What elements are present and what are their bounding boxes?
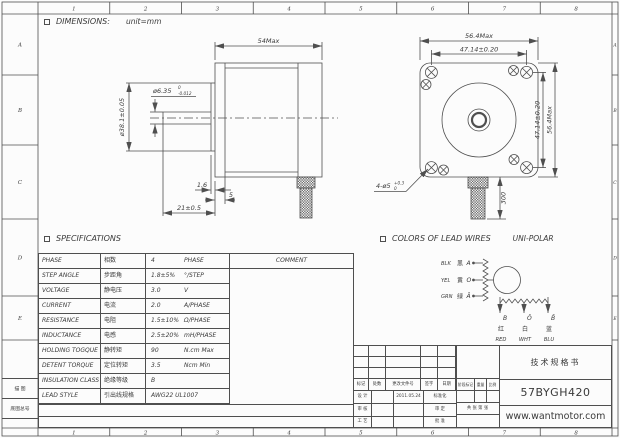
sign-date bbox=[394, 404, 424, 417]
spec-unit bbox=[184, 389, 229, 403]
sign-row-process: 工 艺 批 准 bbox=[354, 417, 456, 427]
zone-number: 7 bbox=[503, 431, 507, 437]
coil-winding-a bbox=[483, 259, 488, 301]
spec-name: LEAD STYLE bbox=[39, 389, 101, 403]
spec-name-cn: 步距角 bbox=[101, 269, 146, 283]
spec-name-cn: 引出线规格 bbox=[101, 389, 146, 403]
dim-hole-pitch-v: 47.14±0.20 bbox=[534, 101, 542, 140]
dim-shaft-dia: ø6.35 bbox=[152, 87, 171, 95]
spec-row-lead-style: LEAD STYLE 引出线规格 AWG22 UL1007 bbox=[39, 389, 229, 404]
wire-color-abbr: BLK bbox=[441, 261, 451, 267]
cable-bundle bbox=[300, 188, 312, 218]
zone-number: 4 bbox=[286, 431, 291, 437]
title-block-right: 技术规格书 57BYGH420 www.wantmotor.com bbox=[499, 346, 611, 427]
spec-row-current: CURRENT 电流 2.0A/PHASE bbox=[39, 299, 229, 314]
spec-name: VOLTAGE bbox=[39, 284, 101, 298]
website: www.wantmotor.com bbox=[500, 406, 611, 427]
sign-label: 工 艺 bbox=[354, 417, 372, 427]
sign-date: 2011.05.24 bbox=[394, 391, 424, 404]
dimensions-section-header: DIMENSIONS: unit=mm bbox=[44, 17, 161, 26]
rev-header: 日期 bbox=[438, 379, 456, 391]
wire-color-abbr: RED bbox=[496, 337, 507, 343]
zone-number: 8 bbox=[574, 431, 578, 437]
dim-hole-callout: 4-ø5 bbox=[376, 182, 391, 190]
spec-row-voltage: VOLTAGE 静电压 3.0V bbox=[39, 284, 229, 299]
rev-header: 处数 bbox=[369, 379, 386, 391]
zone-letter: E bbox=[612, 316, 617, 322]
dim-hole-tol-upper: +0.3 bbox=[394, 181, 405, 186]
spec-name-cn: 静电压 bbox=[101, 284, 146, 298]
zone-number: 5 bbox=[359, 431, 363, 437]
coil-winding-b bbox=[500, 299, 548, 303]
zone-letter: A bbox=[612, 43, 617, 49]
zone-number: 5 bbox=[359, 7, 363, 13]
spec-name: HOLDING TOGQUE bbox=[39, 344, 101, 358]
sign-row-check: 审 核 审 定 bbox=[354, 404, 456, 417]
spec-name: STEP ANGLE bbox=[39, 269, 101, 283]
lead-wires-diagram: BLK 黑 A YEL 黄 O GRN 绿 Ā B Ō B̄ 红 白 蓝 RED… bbox=[441, 259, 555, 343]
zone-letter: D bbox=[17, 256, 23, 262]
dim-hole-tol-lower: 0 bbox=[394, 186, 397, 191]
zone-number: 8 bbox=[574, 7, 578, 13]
spec-name: INDUCTANCE bbox=[39, 329, 101, 343]
spec-row-detent-torque: DETENT TORQUE 定位转矩 3.5Ncm Min bbox=[39, 359, 229, 374]
sign-date bbox=[394, 417, 424, 427]
zone-letter: B bbox=[612, 108, 617, 114]
zone-number: 6 bbox=[431, 431, 435, 437]
wire-color-cn: 蓝 bbox=[546, 325, 552, 333]
cable-connector bbox=[297, 177, 315, 188]
spec-row-insulation-class: INSULATION CLASS 绝缘等级 B bbox=[39, 374, 229, 389]
spec-row-phase: PHASE 相数 4PHASE bbox=[39, 254, 229, 269]
spec-empty-rows bbox=[39, 404, 353, 427]
wire-color-cn: 黑 bbox=[457, 261, 463, 268]
spec-name-cn: 定位转矩 bbox=[101, 359, 146, 373]
zone-letter: D bbox=[612, 256, 617, 262]
spec-name: PHASE bbox=[39, 254, 101, 268]
wire-color-cn: 红 bbox=[498, 325, 504, 333]
comment-header: COMMENT bbox=[230, 254, 353, 269]
wire-color-cn: 白 bbox=[522, 325, 528, 333]
specifications-table: PHASE 相数 4PHASE STEP ANGLE 步距角 1.8±5%°/S… bbox=[38, 253, 354, 428]
section-checkbox-icon bbox=[44, 19, 50, 25]
wire-terminal: A bbox=[466, 260, 471, 267]
motor-body-circle bbox=[494, 267, 521, 294]
zone-number: 4 bbox=[286, 7, 291, 13]
zone-letter: A bbox=[17, 43, 22, 49]
wire-color-abbr: GRN bbox=[441, 294, 453, 300]
corner-cell: 描 图 bbox=[2, 379, 38, 399]
spec-value: 90 bbox=[146, 344, 184, 358]
corner-cell: 底图总号 bbox=[2, 399, 38, 419]
sign-label: 设 计 bbox=[354, 391, 372, 404]
rev-header: 签字 bbox=[421, 379, 438, 391]
spec-unit bbox=[184, 374, 229, 388]
dim-boss-height: 1.6 bbox=[197, 181, 207, 189]
dim-body-height: 56.4Max bbox=[546, 106, 554, 134]
cable-bundle bbox=[471, 188, 485, 219]
comment-column: COMMENT bbox=[229, 254, 353, 404]
spec-name-cn: 绝缘等级 bbox=[101, 374, 146, 388]
zone-number: 2 bbox=[143, 431, 148, 437]
wire-terminal: O bbox=[467, 277, 472, 284]
spec-name-cn: 电流 bbox=[101, 299, 146, 313]
spec-row-inductance: INDUCTANCE 电感 2.5±20%mH/PHASE bbox=[39, 329, 229, 344]
lead-wires-section-header: COLORS OF LEAD WIRES UNI-POLAR bbox=[380, 234, 554, 243]
wire-color-abbr: WHT bbox=[519, 337, 532, 343]
section-checkbox-icon bbox=[44, 236, 50, 242]
wire-color-abbr: YEL bbox=[441, 278, 450, 284]
zone-letter: E bbox=[17, 316, 22, 322]
dimensions-title: DIMENSIONS: bbox=[56, 17, 110, 26]
cable-connector bbox=[468, 177, 488, 188]
zone-number: 1 bbox=[72, 7, 76, 13]
dim-lead-length: 300 bbox=[500, 192, 508, 204]
spec-name: DETENT TORQUE bbox=[39, 359, 101, 373]
dim-body-length: 54Max bbox=[258, 37, 280, 45]
spec-value: 1.8±5% bbox=[146, 269, 184, 283]
revision-header-row: 标记 处数 更改文件号 签字 日期 bbox=[354, 379, 456, 391]
specifications-title: SPECIFICATIONS bbox=[56, 234, 121, 243]
specifications-section-header: SPECIFICATIONS bbox=[44, 234, 121, 243]
datasheet-page: 1 2 3 4 5 6 7 8 1 2 3 4 5 6 7 8 A B C D … bbox=[0, 0, 620, 438]
dim-body-width: 56.4Max bbox=[465, 32, 493, 40]
spec-row-holding-torque: HOLDING TOGQUE 静转矩 90N.cm Max bbox=[39, 344, 229, 359]
wire-terminal: B bbox=[503, 315, 507, 322]
dim-hole-pitch-h: 47.14±0.20 bbox=[460, 46, 499, 54]
spec-name-cn: 静转矩 bbox=[101, 344, 146, 358]
sign-right-label: 标准化 bbox=[424, 391, 456, 404]
spec-unit: mH/PHASE bbox=[184, 329, 229, 343]
sign-right-label: 审 定 bbox=[424, 404, 456, 417]
zone-number: 6 bbox=[431, 7, 435, 13]
spec-row-step-angle: STEP ANGLE 步距角 1.8±5%°/STEP bbox=[39, 269, 229, 284]
sign-right-label: 批 准 bbox=[424, 417, 456, 427]
spec-unit: PHASE bbox=[184, 254, 229, 268]
spec-name: RESISTANCE bbox=[39, 314, 101, 328]
corner-block: 描 图 底图总号 bbox=[2, 378, 38, 428]
wire-terminal: Ō bbox=[527, 315, 532, 322]
spec-row-resistance: RESISTANCE 电阻 1.5±10%Ω/PHASE bbox=[39, 314, 229, 329]
unit-note: unit=mm bbox=[126, 17, 161, 26]
spec-unit: A/PHASE bbox=[184, 299, 229, 313]
motor-front-view-drawing: 56.4Max 47.14±0.20 47.14±0.20 56.4Max 30… bbox=[374, 32, 558, 219]
dim-shaft-tol-lower: -0.012 bbox=[178, 91, 192, 96]
spec-value: 1.5±10% bbox=[146, 314, 184, 328]
dim-shaft-length: 21±0.5 bbox=[177, 204, 201, 212]
motor-side-view-drawing: 54Max ø6.35 0 -0.012 ø38.1±0.05 1.6 5 21… bbox=[118, 37, 338, 218]
spec-name-cn: 电阻 bbox=[101, 314, 146, 328]
sign-label: 审 核 bbox=[354, 404, 372, 417]
wire-terminal: Ā bbox=[466, 293, 471, 300]
spec-unit: Ω/PHASE bbox=[184, 314, 229, 328]
spec-value: 4 bbox=[146, 254, 184, 268]
spec-value: 3.0 bbox=[146, 284, 184, 298]
wire-color-cn: 绿 bbox=[457, 293, 463, 301]
zone-number: 1 bbox=[72, 431, 76, 437]
zone-number: 2 bbox=[143, 7, 148, 13]
spec-value: 2.5±20% bbox=[146, 329, 184, 343]
zone-letter: B bbox=[17, 108, 22, 114]
lead-wires-title: COLORS OF LEAD WIRES bbox=[392, 234, 491, 243]
spec-unit: V bbox=[184, 284, 229, 298]
dim-shaft-tol-upper: 0 bbox=[178, 85, 181, 90]
stage-header: 重量 bbox=[475, 379, 487, 390]
rev-header: 标记 bbox=[354, 379, 369, 391]
wire-color-cn: 黄 bbox=[457, 277, 463, 285]
zone-number: 3 bbox=[216, 7, 220, 13]
spec-name: CURRENT bbox=[39, 299, 101, 313]
spec-unit: N.cm Max bbox=[184, 344, 229, 358]
spec-name-cn: 相数 bbox=[101, 254, 146, 268]
spec-value: B bbox=[146, 374, 184, 388]
model-number: 57BYGH420 bbox=[500, 380, 611, 406]
spec-name: INSULATION CLASS bbox=[39, 374, 101, 388]
spec-value: 3.5 bbox=[146, 359, 184, 373]
stage-header: 比例 bbox=[487, 379, 498, 390]
zone-number: 3 bbox=[216, 431, 220, 437]
spec-unit: °/STEP bbox=[184, 269, 229, 283]
spec-name-cn: 电感 bbox=[101, 329, 146, 343]
dim-pilot-dia: ø38.1±0.05 bbox=[118, 98, 126, 137]
wire-color-abbr: BLU bbox=[544, 337, 554, 343]
rev-header: 更改文件号 bbox=[386, 379, 421, 391]
wire-terminal: B̄ bbox=[551, 315, 555, 322]
stage-header: 阶段标记 bbox=[457, 379, 475, 390]
title-block: 标记 处数 更改文件号 签字 日期 设 计 2011.05.24 标准化 审 核… bbox=[353, 345, 612, 428]
spec-value: AWG22 UL1007 bbox=[146, 389, 184, 403]
zone-number: 7 bbox=[503, 7, 507, 13]
sheet-note-cell: 共 张 第 张 bbox=[457, 403, 499, 415]
zone-letter: C bbox=[613, 180, 617, 186]
spec-unit: Ncm Min bbox=[184, 359, 229, 373]
lead-wires-subtitle: UNI-POLAR bbox=[513, 234, 554, 243]
sign-row-design: 设 计 2011.05.24 标准化 bbox=[354, 391, 456, 404]
dim-flange-thickness: 5 bbox=[229, 191, 233, 199]
title-block-middle: 阶段标记 重量 比例 共 张 第 张 bbox=[456, 346, 499, 427]
stage-header-row: 阶段标记 重量 比例 bbox=[457, 379, 499, 391]
doc-type: 技术规格书 bbox=[500, 346, 611, 380]
section-checkbox-icon bbox=[380, 236, 386, 242]
spec-value: 2.0 bbox=[146, 299, 184, 313]
zone-letter: C bbox=[18, 180, 23, 186]
